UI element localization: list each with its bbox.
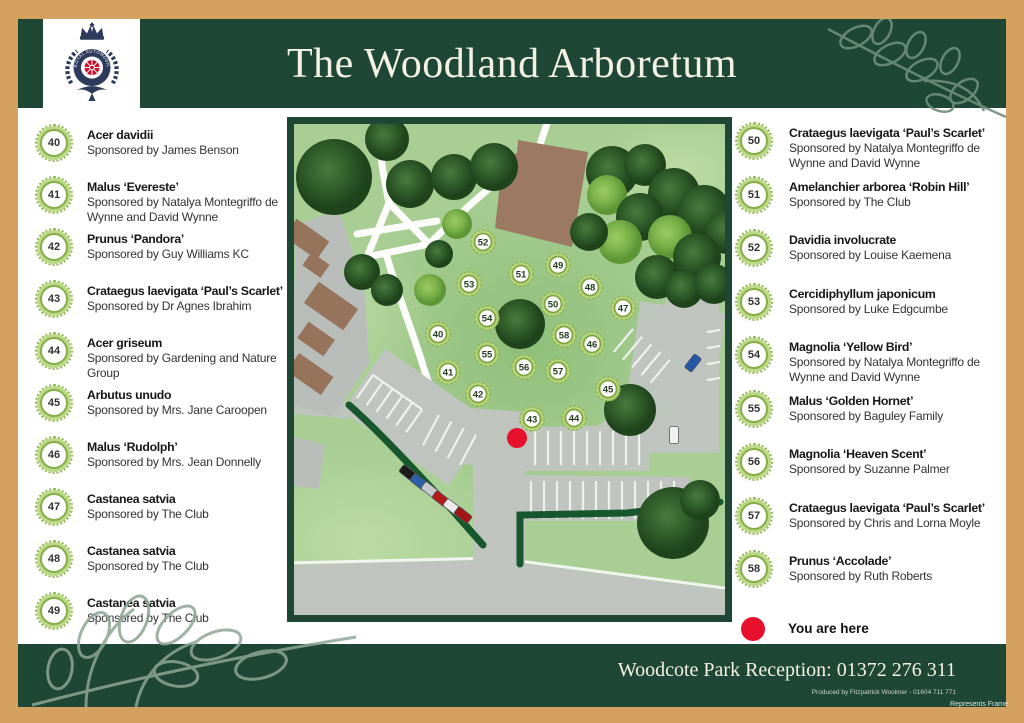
tree-sponsor: Sponsored by Baguley Family [789,409,1017,424]
tree-list-item: 53Cercidiphyllum japonicumSponsored by L… [740,287,1017,317]
svg-text:46: 46 [587,339,598,350]
map-tree-marker-41: 41 [436,360,460,384]
footer-band: Woodcote Park Reception: 01372 276 311 P… [18,644,1006,707]
tree-number-badge: 53 [740,288,768,316]
svg-text:48: 48 [585,282,596,293]
tree-list-item: 51Amelanchier arborea ‘Robin Hill’Sponso… [740,180,1017,210]
tree-number-badge: 56 [740,448,768,476]
map-tree-marker-52: 52 [471,230,495,254]
map-tree-marker-45: 45 [596,377,620,401]
tree-number-badge: 54 [740,341,768,369]
royal-automobile-club-crest-icon: ROYAL AUTOMOBILE CLUB [54,22,130,106]
map-tree-marker-49: 49 [546,253,570,277]
tree-name: Arbutus unudo [87,388,283,403]
svg-text:58: 58 [559,330,570,341]
tree-sponsor: Sponsored by Chris and Lorna Moyle [789,516,1017,531]
tree-name: Crataegus laevigata ‘Paul’s Scarlet’ [789,501,1017,516]
tree-list-item: 54Magnolia ‘Yellow Bird’Sponsored by Nat… [740,340,1017,385]
tree-number-badge: 52 [740,234,768,262]
tree-sponsor: Sponsored by The Club [87,559,283,574]
svg-text:43: 43 [527,414,538,425]
tree-sponsor: Sponsored by Gardening and Nature Group [87,351,283,381]
svg-text:42: 42 [473,389,484,400]
map-tree-marker-55: 55 [475,342,499,366]
tree-number-badge: 51 [740,181,768,209]
map-tree-marker-48: 48 [578,275,602,299]
tree-list-item: 55Malus ‘Golden Hornet’Sponsored by Bagu… [740,394,1017,424]
tree-number-badge: 49 [40,597,68,625]
map-tree-marker-43: 43 [520,407,544,431]
tree-list-item: 58Prunus ‘Accolade’Sponsored by Ruth Rob… [740,554,1017,584]
tree-name: Crataegus laevigata ‘Paul’s Scarlet’ [789,126,1017,141]
svg-text:50: 50 [548,299,559,310]
tree-name: Crataegus laevigata ‘Paul’s Scarlet’ [87,284,283,299]
tree-number-badge: 44 [40,337,68,365]
tree-name: Acer davidii [87,128,283,143]
tree-number-badge: 41 [40,181,68,209]
tree-number-badge: 46 [40,441,68,469]
tree-name: Castanea satvia [87,492,283,507]
tree-name: Cercidiphyllum japonicum [789,287,1017,302]
svg-text:54: 54 [482,313,493,324]
you-are-here-legend: You are here [740,617,869,641]
header-band: The Woodland Arboretum ROYAL AUTOMOBILE … [18,19,1006,108]
svg-text:41: 41 [443,367,454,378]
arboretum-sign: The Woodland Arboretum ROYAL AUTOMOBILE … [18,19,1006,707]
tree-name: Prunus ‘Accolade’ [789,554,1017,569]
map-canvas: 40414243444546474849505152535455565758 [287,117,732,622]
map-tree-marker-53: 53 [457,272,481,296]
tree-sponsor: Sponsored by Mrs. Jean Donnelly [87,455,283,470]
tree-name: Malus ‘Evereste’ [87,180,283,195]
tree-name: Magnolia ‘Yellow Bird’ [789,340,1017,355]
map-tree-marker-42: 42 [466,382,490,406]
map-tree-marker-58: 58 [552,323,576,347]
tree-number-badge: 58 [740,555,768,583]
map-you-are-here-dot [507,428,527,448]
map-tree-marker-57: 57 [546,359,570,383]
frame-note: Represents Frame [950,701,1008,708]
tree-sponsor: Sponsored by Natalya Montegriffo de Wynn… [789,355,1017,385]
tree-sponsor: Sponsored by Luke Edgcumbe [789,302,1017,317]
tree-sponsor: Sponsored by Suzanne Palmer [789,462,1017,477]
svg-text:56: 56 [519,362,530,373]
tree-list-item: 47Castanea satviaSponsored by The Club [40,492,283,522]
tree-list-item: 45Arbutus unudoSponsored by Mrs. Jane Ca… [40,388,283,418]
tree-sponsor: Sponsored by Natalya Montegriffo de Wynn… [87,195,283,225]
map-tree-marker-44: 44 [562,406,586,430]
svg-text:44: 44 [569,413,580,424]
tree-sponsor: Sponsored by Ruth Roberts [789,569,1017,584]
tree-list-item: 42Prunus ‘Pandora’Sponsored by Guy Willi… [40,232,283,262]
svg-text:45: 45 [603,384,614,395]
map-tree-marker-47: 47 [611,296,635,320]
svg-text:53: 53 [464,279,475,290]
map-tree-marker-40: 40 [426,322,450,346]
map-tree-marker-54: 54 [475,306,499,330]
arboretum-map: 40414243444546474849505152535455565758 [287,117,732,622]
tree-sponsor: Sponsored by James Benson [87,143,283,158]
svg-text:51: 51 [516,269,527,280]
svg-text:47: 47 [618,303,629,314]
tree-sponsor: Sponsored by Mrs. Jane Caroopen [87,403,283,418]
tree-sponsor: Sponsored by The Club [87,611,283,626]
tree-list-item: 49Castanea satviaSponsored by The Club [40,596,283,626]
tree-list-item: 43Crataegus laevigata ‘Paul’s Scarlet’Sp… [40,284,283,314]
tree-list-item: 48Castanea satviaSponsored by The Club [40,544,283,574]
map-tree-marker-46: 46 [580,332,604,356]
tree-name: Prunus ‘Pandora’ [87,232,283,247]
tree-name: Davidia involucrate [789,233,1017,248]
producer-credit: Produced by Fitzpatrick Woolmer - 01604 … [812,689,956,696]
tree-name: Malus ‘Rudolph’ [87,440,283,455]
tree-number-badge: 43 [40,285,68,313]
reception-phone: Woodcote Park Reception: 01372 276 311 [618,659,956,682]
tree-list-item: 52Davidia involucrateSponsored by Louise… [740,233,1017,263]
svg-text:52: 52 [478,237,489,248]
tree-list-item: 50Crataegus laevigata ‘Paul’s Scarlet’Sp… [740,126,1017,171]
tree-list-item: 41Malus ‘Evereste’Sponsored by Natalya M… [40,180,283,225]
tree-list-item: 46Malus ‘Rudolph’Sponsored by Mrs. Jean … [40,440,283,470]
tree-list-item: 40Acer davidiiSponsored by James Benson [40,128,283,158]
svg-text:57: 57 [553,366,564,377]
map-tree-marker-51: 51 [509,262,533,286]
tree-number-badge: 57 [740,502,768,530]
tree-name: Castanea satvia [87,544,283,559]
tree-sponsor: Sponsored by The Club [789,195,1017,210]
tree-list-item: 44Acer griseumSponsored by Gardening and… [40,336,283,381]
you-are-here-dot-icon [741,617,765,641]
tree-sponsor: Sponsored by The Club [87,507,283,522]
you-are-here-label: You are here [788,621,869,636]
tree-sponsor: Sponsored by Guy Williams KC [87,247,283,262]
tree-number-badge: 55 [740,395,768,423]
svg-text:55: 55 [482,349,493,360]
page-title: The Woodland Arboretum [18,19,1006,108]
tree-number-badge: 48 [40,545,68,573]
tree-name: Acer griseum [87,336,283,351]
tree-number-badge: 42 [40,233,68,261]
tree-number-badge: 40 [40,129,68,157]
tree-list-item: 57Crataegus laevigata ‘Paul’s Scarlet’Sp… [740,501,1017,531]
tree-number-badge: 45 [40,389,68,417]
tree-name: Castanea satvia [87,596,283,611]
tree-sponsor: Sponsored by Dr Agnes Ibrahim [87,299,283,314]
map-tree-marker-56: 56 [512,355,536,379]
map-tree-marker-50: 50 [541,292,565,316]
tree-number-badge: 50 [740,127,768,155]
tree-sponsor: Sponsored by Louise Kaemena [789,248,1017,263]
svg-text:40: 40 [433,329,444,340]
tree-sponsor: Sponsored by Natalya Montegriffo de Wynn… [789,141,1017,171]
tree-list-item: 56Magnolia ‘Heaven Scent’Sponsored by Su… [740,447,1017,477]
club-logo: ROYAL AUTOMOBILE CLUB [43,19,140,108]
tree-number-badge: 47 [40,493,68,521]
svg-text:49: 49 [553,260,564,271]
tree-name: Amelanchier arborea ‘Robin Hill’ [789,180,1017,195]
tree-name: Malus ‘Golden Hornet’ [789,394,1017,409]
tree-name: Magnolia ‘Heaven Scent’ [789,447,1017,462]
